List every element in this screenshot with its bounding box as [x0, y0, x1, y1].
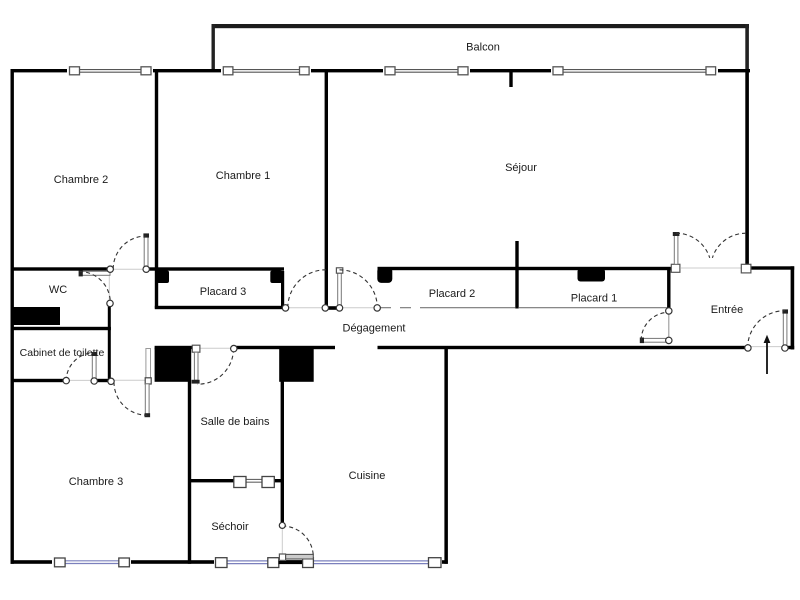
svg-text:Entrée: Entrée [711, 304, 743, 316]
svg-text:Chambre 3: Chambre 3 [69, 476, 123, 488]
svg-text:Salle de bains: Salle de bains [200, 416, 270, 428]
svg-text:Placard 3: Placard 3 [200, 286, 246, 298]
svg-text:Placard 2: Placard 2 [429, 288, 475, 300]
svg-text:Chambre 2: Chambre 2 [54, 174, 108, 186]
svg-text:Cuisine: Cuisine [349, 470, 386, 482]
svg-text:Séjour: Séjour [505, 162, 537, 174]
svg-text:Chambre 1: Chambre 1 [216, 170, 270, 182]
svg-text:WC: WC [49, 284, 67, 296]
svg-text:Séchoir: Séchoir [211, 521, 249, 533]
svg-text:Balcon: Balcon [466, 42, 500, 54]
svg-text:Dégagement: Dégagement [343, 323, 406, 335]
svg-text:Placard 1: Placard 1 [571, 293, 617, 305]
